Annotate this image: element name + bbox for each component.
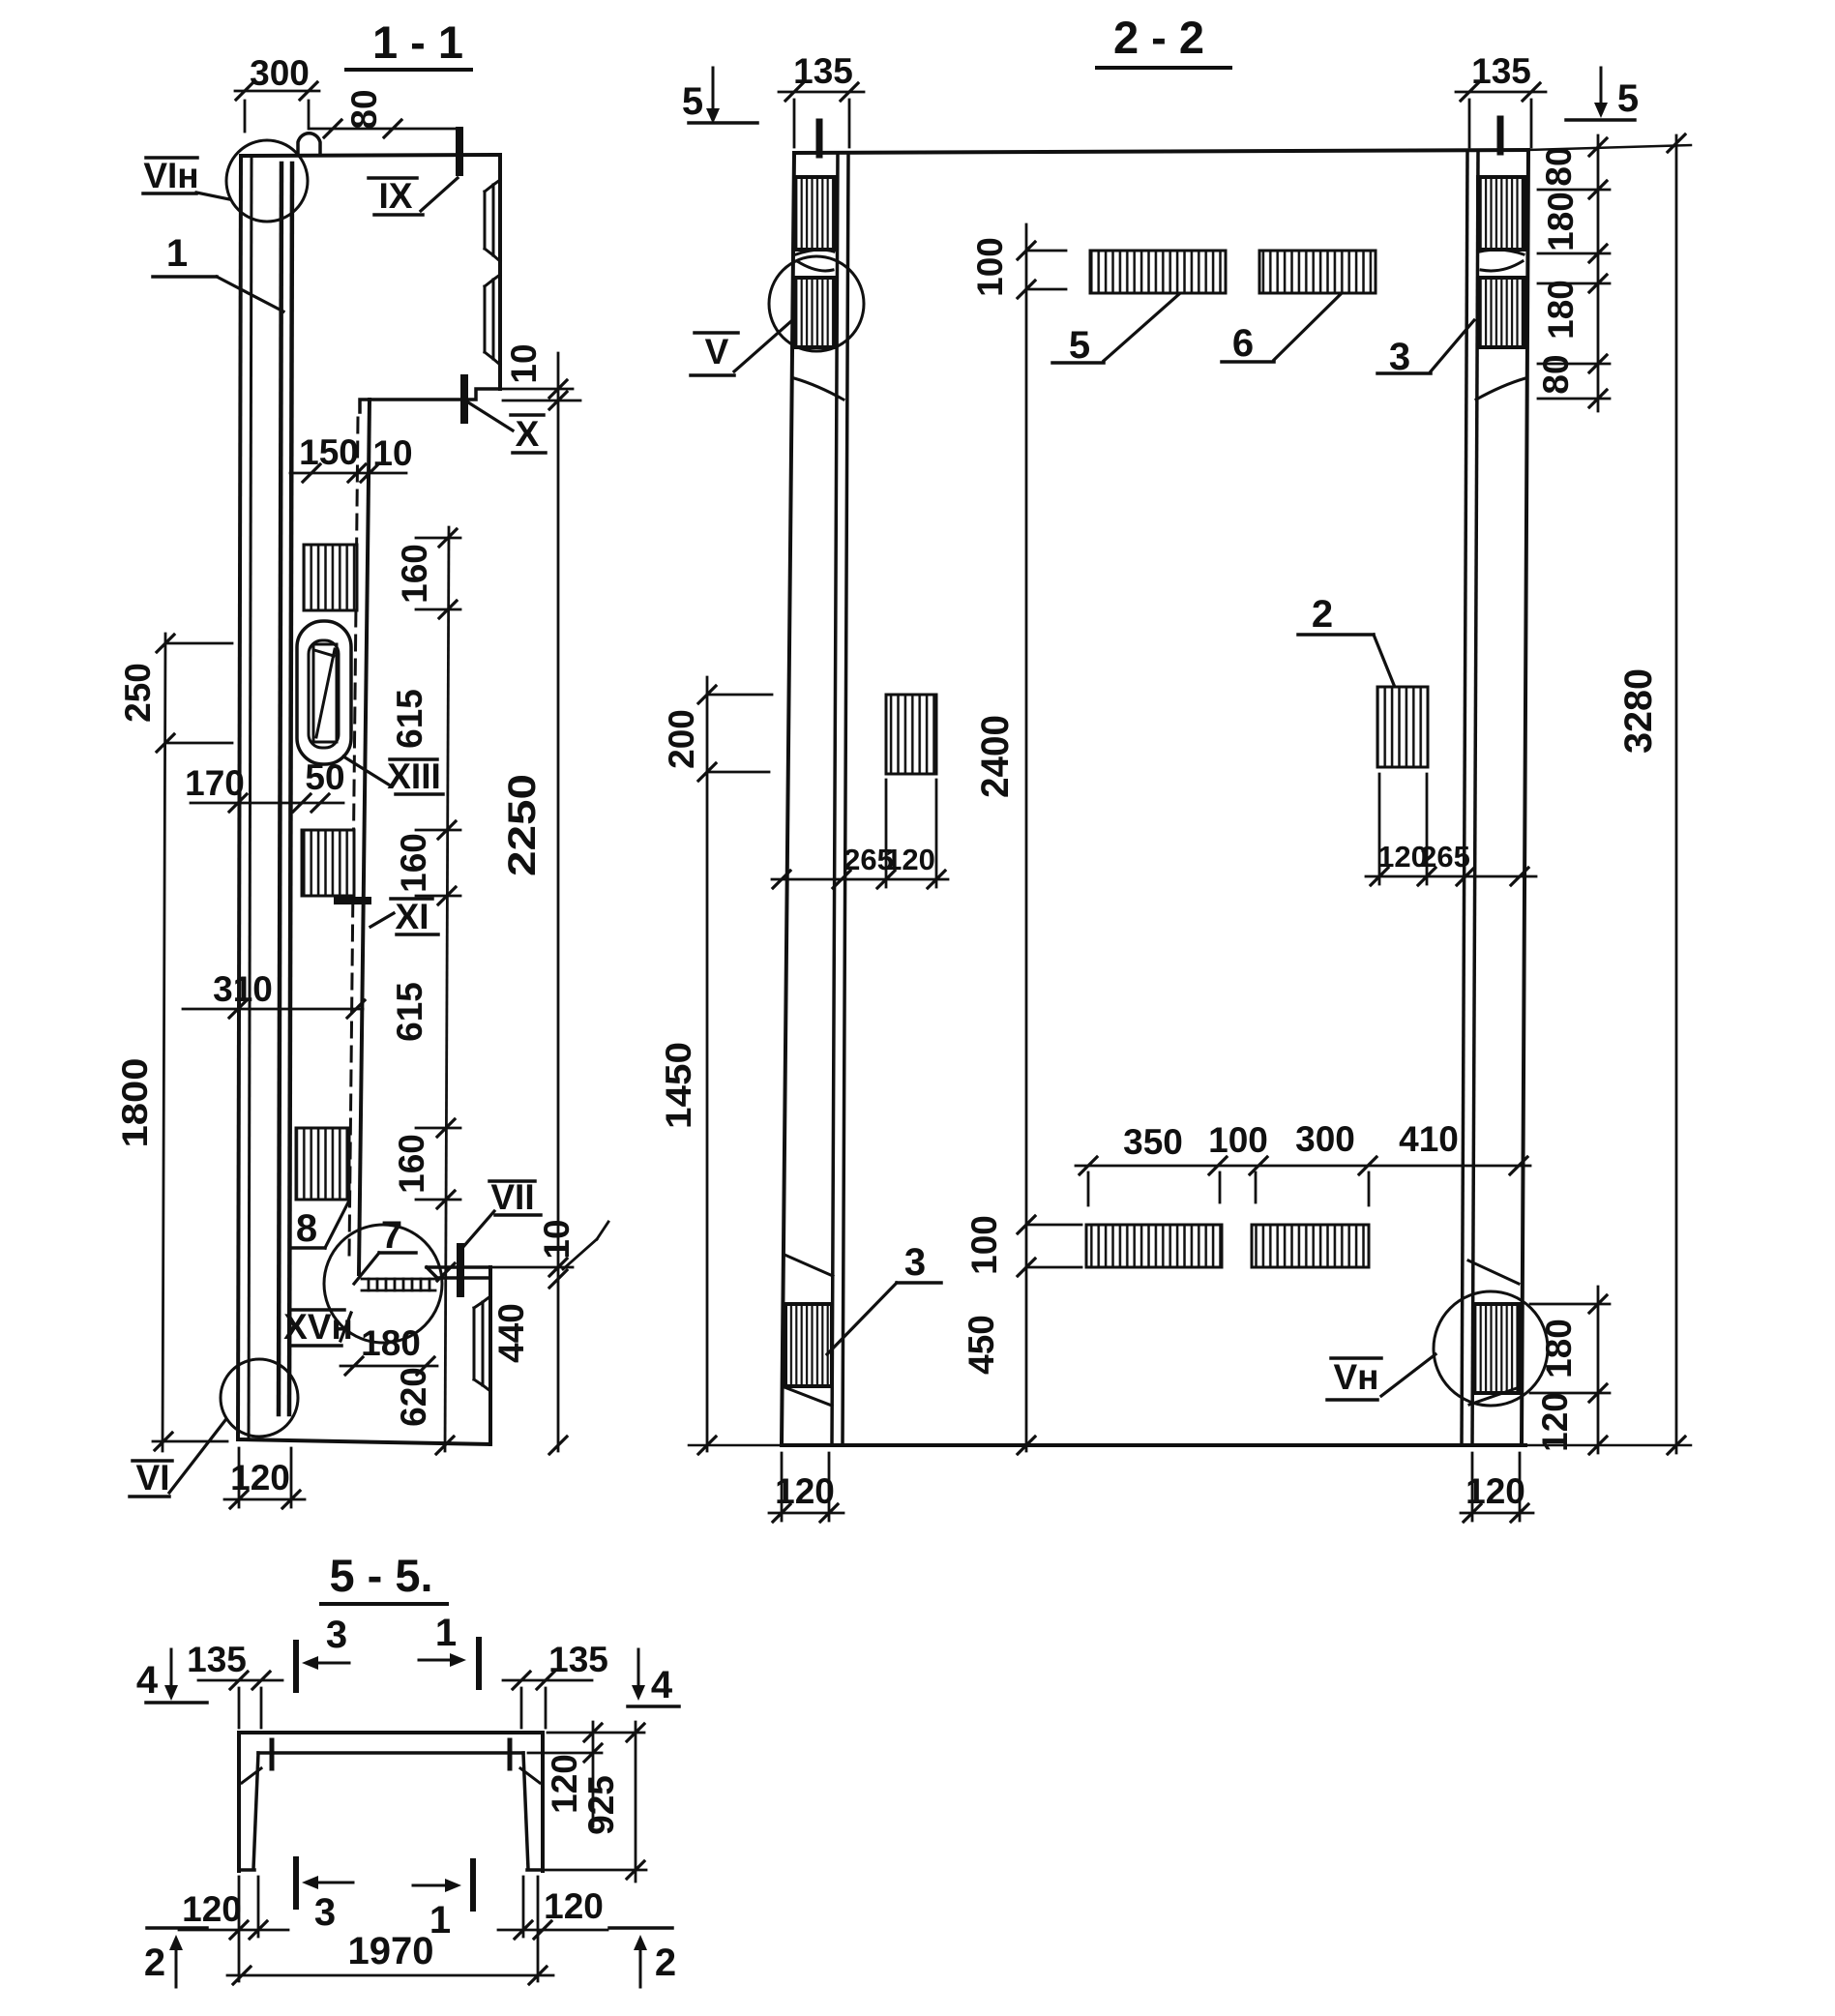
svg-text:120: 120 <box>182 1889 242 1929</box>
svg-text:410: 410 <box>1399 1119 1459 1159</box>
svg-text:6: 6 <box>1232 322 1254 365</box>
svg-text:2: 2 <box>1312 593 1333 636</box>
svg-text:VII: VII <box>490 1177 534 1217</box>
svg-text:120: 120 <box>1535 1392 1575 1452</box>
svg-text:1800: 1800 <box>115 1058 155 1148</box>
svg-text:135: 135 <box>1471 51 1531 91</box>
svg-text:1450: 1450 <box>659 1042 698 1129</box>
svg-text:8: 8 <box>296 1207 317 1250</box>
svg-text:80: 80 <box>1539 146 1579 186</box>
svg-text:615: 615 <box>390 982 429 1042</box>
svg-text:100: 100 <box>1208 1120 1268 1160</box>
svg-text:180: 180 <box>361 1323 421 1363</box>
svg-text:615: 615 <box>390 689 429 749</box>
svg-text:310: 310 <box>213 969 273 1009</box>
svg-text:2: 2 <box>655 1942 676 1984</box>
svg-text:80: 80 <box>1536 354 1576 394</box>
svg-text:IX: IX <box>379 176 413 216</box>
svg-text:10: 10 <box>537 1219 577 1259</box>
svg-text:120: 120 <box>1465 1471 1525 1511</box>
svg-text:2250: 2250 <box>501 774 544 876</box>
svg-text:100: 100 <box>964 1215 1004 1275</box>
svg-text:3: 3 <box>326 1614 347 1656</box>
svg-text:100: 100 <box>970 237 1010 297</box>
svg-text:3: 3 <box>904 1241 926 1284</box>
svg-text:450: 450 <box>962 1315 1001 1375</box>
svg-text:120: 120 <box>230 1458 290 1497</box>
svg-text:1: 1 <box>435 1612 457 1654</box>
svg-text:1 - 1: 1 - 1 <box>372 16 463 68</box>
svg-text:7: 7 <box>381 1214 402 1257</box>
svg-text:120: 120 <box>545 1754 584 1814</box>
svg-text:80: 80 <box>344 89 384 129</box>
svg-text:5: 5 <box>682 80 703 123</box>
svg-text:2400: 2400 <box>974 715 1017 798</box>
svg-text:200: 200 <box>662 709 701 769</box>
svg-text:VI: VI <box>136 1458 170 1497</box>
svg-text:440: 440 <box>491 1303 531 1363</box>
svg-text:180: 180 <box>1539 1319 1579 1379</box>
svg-text:3280: 3280 <box>1617 668 1660 754</box>
svg-text:250: 250 <box>118 663 158 723</box>
svg-text:135: 135 <box>548 1640 608 1679</box>
svg-text:XIII: XIII <box>387 756 441 796</box>
svg-text:1970: 1970 <box>348 1930 434 1972</box>
svg-text:160: 160 <box>394 833 433 893</box>
svg-text:10: 10 <box>504 343 544 383</box>
svg-text:300: 300 <box>1295 1119 1355 1159</box>
svg-text:180: 180 <box>1541 280 1581 340</box>
svg-text:925: 925 <box>581 1775 621 1835</box>
svg-text:620: 620 <box>394 1367 433 1427</box>
svg-text:265: 265 <box>1420 840 1470 874</box>
svg-text:1: 1 <box>166 232 188 275</box>
svg-text:150: 150 <box>299 432 359 472</box>
svg-text:1: 1 <box>429 1899 451 1942</box>
svg-text:170: 170 <box>185 763 245 803</box>
svg-text:120: 120 <box>775 1471 835 1511</box>
svg-text:135: 135 <box>187 1640 247 1679</box>
svg-text:2: 2 <box>144 1942 165 1984</box>
svg-text:160: 160 <box>395 544 434 604</box>
svg-text:350: 350 <box>1123 1122 1183 1162</box>
svg-text:2 - 2: 2 - 2 <box>1113 12 1204 63</box>
svg-text:5: 5 <box>1617 77 1639 120</box>
svg-text:4: 4 <box>651 1664 673 1706</box>
svg-text:X: X <box>516 414 540 454</box>
svg-text:3: 3 <box>314 1891 336 1934</box>
svg-text:4: 4 <box>136 1659 159 1702</box>
svg-text:120: 120 <box>885 843 935 876</box>
svg-text:XVн: XVн <box>283 1307 353 1347</box>
svg-text:5: 5 <box>1069 324 1090 367</box>
svg-text:Vн: Vн <box>1333 1357 1378 1397</box>
svg-text:5 - 5.: 5 - 5. <box>329 1550 432 1601</box>
svg-text:V: V <box>705 332 729 371</box>
svg-text:180: 180 <box>1541 192 1581 252</box>
svg-text:10: 10 <box>372 433 412 473</box>
svg-text:VIн: VIн <box>143 156 198 195</box>
svg-text:120: 120 <box>544 1886 604 1926</box>
svg-text:300: 300 <box>250 53 310 93</box>
svg-text:160: 160 <box>392 1134 431 1194</box>
svg-text:50: 50 <box>305 757 344 797</box>
svg-text:135: 135 <box>793 51 853 91</box>
svg-text:XI: XI <box>396 897 429 936</box>
